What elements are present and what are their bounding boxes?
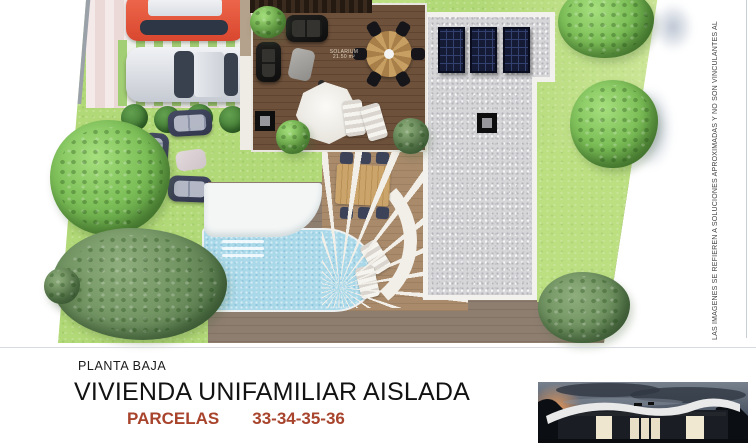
tree — [538, 272, 630, 343]
red-car — [126, 0, 244, 41]
solarium-area: 21.50 m² — [323, 55, 365, 60]
silver-car — [126, 47, 253, 102]
garden-sofa — [167, 109, 212, 137]
red-car-windshield — [140, 20, 228, 35]
floor-label: PLANTA BAJA — [78, 359, 166, 373]
parcels-numbers: 33-34-35-36 — [252, 409, 345, 429]
footer-divider — [0, 347, 756, 348]
house-photo — [538, 382, 748, 443]
tree-shadow — [652, 2, 694, 52]
deck-sofa — [256, 42, 281, 82]
solar-panel — [438, 27, 465, 73]
deck-sofa — [286, 15, 328, 42]
table-centerpiece — [384, 49, 394, 59]
red-car-roof — [148, 0, 222, 16]
side-walkway — [240, 56, 254, 150]
solarium-label: SOLARIUM 21.50 m² — [323, 50, 365, 60]
house-photo-render — [538, 382, 748, 443]
silver-car-rear-window — [224, 53, 238, 96]
deck-skylight — [255, 111, 275, 131]
margin-rule — [746, 0, 747, 338]
solar-panel — [470, 27, 497, 73]
silver-car-windshield — [174, 51, 194, 98]
silver-car-roof — [194, 52, 224, 97]
site-plan-page: SOLARIUM 21.50 m² LAS IMÁGENES SE REFIER… — [0, 0, 756, 443]
disclaimer-vertical-text: LAS IMÁGENES SE REFIEREN A SOLUCIONES AP… — [712, 2, 732, 340]
parcels-label: PARCELAS — [127, 409, 219, 429]
solar-panel — [503, 27, 530, 73]
page-title: VIVIENDA UNIFAMILIAR AISLADA — [74, 378, 470, 407]
roof-skylight — [477, 113, 497, 133]
round-table-chair — [411, 48, 425, 60]
parcels-line: PARCELAS 33-34-35-36 — [127, 409, 345, 429]
